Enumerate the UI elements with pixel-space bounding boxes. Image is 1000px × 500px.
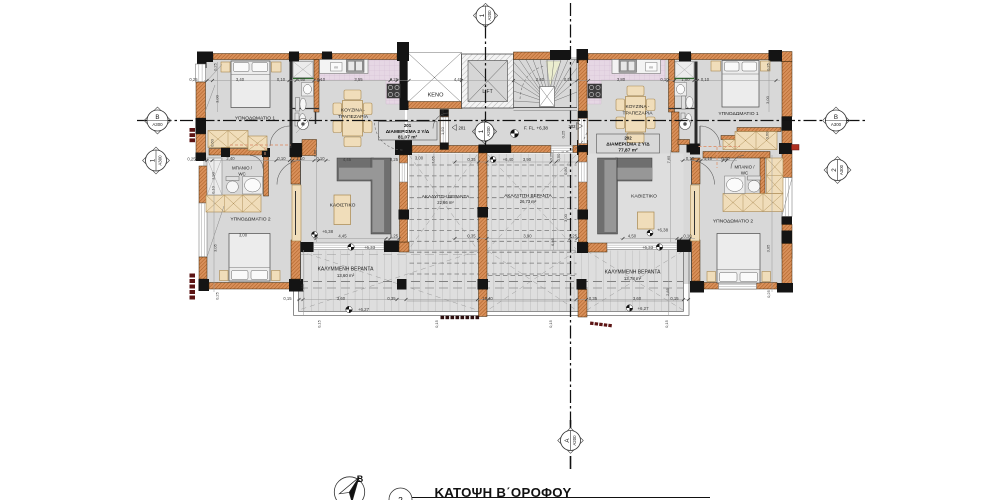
svg-text:0,25: 0,25 <box>213 62 218 71</box>
svg-text:3,80: 3,80 <box>617 77 626 82</box>
svg-text:WC: WC <box>238 172 245 177</box>
svg-text:0,10: 0,10 <box>660 77 669 82</box>
svg-text:7,65: 7,65 <box>666 155 671 164</box>
svg-text:3,90: 3,90 <box>523 157 532 162</box>
svg-text:A200: A200 <box>572 435 577 446</box>
svg-text:3,05: 3,05 <box>213 243 218 252</box>
svg-text:ΚΟΥΖΙΝΑ -: ΚΟΥΖΙΝΑ - <box>626 104 650 110</box>
svg-text:1: 1 <box>149 158 156 162</box>
svg-text:0,10: 0,10 <box>683 234 692 239</box>
svg-text:B: B <box>155 114 159 121</box>
svg-text:ΑΚΑΛΥΠΤΗ ΒΕΡΑΝΤΑ: ΑΚΑΛΥΠΤΗ ΒΕΡΑΝΤΑ <box>422 194 470 199</box>
svg-text:0,25: 0,25 <box>766 289 771 298</box>
svg-text:0,25: 0,25 <box>561 130 566 139</box>
svg-text:0,15: 0,15 <box>664 319 669 328</box>
svg-text:0,60: 0,60 <box>210 138 215 147</box>
svg-text:nn: nn <box>334 65 338 69</box>
svg-text:0,10: 0,10 <box>277 156 286 161</box>
svg-text:1,00: 1,00 <box>681 77 690 82</box>
svg-text:0,60: 0,60 <box>765 131 770 140</box>
svg-text:0,10: 0,10 <box>210 185 215 194</box>
svg-text:+6,33: +6,33 <box>364 245 376 250</box>
svg-text:1: 1 <box>478 129 485 133</box>
svg-text:13,60 m²: 13,60 m² <box>337 273 355 278</box>
svg-text:ΚΑΘΙΣΤΙΚΟ: ΚΑΘΙΣΤΙΚΟ <box>330 203 356 209</box>
svg-text:0,25: 0,25 <box>189 77 198 82</box>
svg-text:A300: A300 <box>839 164 844 175</box>
svg-text:4,45: 4,45 <box>454 77 463 82</box>
svg-text:0,25: 0,25 <box>187 157 196 162</box>
svg-text:0,35: 0,35 <box>467 157 476 162</box>
svg-text:0,25: 0,25 <box>564 77 573 82</box>
svg-text:0,25: 0,25 <box>548 152 553 161</box>
svg-text:3,40: 3,40 <box>236 77 245 82</box>
svg-text:0,15: 0,15 <box>283 296 292 301</box>
svg-text:0,50: 0,50 <box>556 153 561 162</box>
svg-text:18,40: 18,40 <box>482 296 493 301</box>
svg-text:2,85: 2,85 <box>300 283 305 292</box>
svg-text:0,15: 0,15 <box>670 296 679 301</box>
svg-text:0,25: 0,25 <box>440 109 445 118</box>
svg-text:+6,27: +6,27 <box>358 307 370 312</box>
svg-text:4,50: 4,50 <box>628 234 637 239</box>
svg-text:0,35: 0,35 <box>467 234 476 239</box>
svg-text:ΔΙΑΜΕΡΙΣΜΑ 2 Υ/Δ: ΔΙΑΜΕΡΙΣΜΑ 2 Υ/Δ <box>386 129 430 135</box>
svg-text:2: 2 <box>831 168 838 172</box>
svg-text:1: 1 <box>479 13 486 17</box>
svg-text:ΔΙΑΜΕΡΙΣΜΑ 2 Υ/Δ: ΔΙΑΜΕΡΙΣΜΑ 2 Υ/Δ <box>606 142 650 148</box>
svg-text:A300: A300 <box>152 122 163 127</box>
svg-text:201: 201 <box>404 123 412 128</box>
svg-text:0,10: 0,10 <box>316 156 325 161</box>
svg-text:2: 2 <box>398 495 403 500</box>
svg-text:A300: A300 <box>831 122 842 127</box>
svg-text:2,40: 2,40 <box>226 156 235 161</box>
svg-text:22,86 m²: 22,86 m² <box>437 200 454 205</box>
svg-text:0,10: 0,10 <box>686 156 695 161</box>
svg-text:0,15: 0,15 <box>548 319 553 328</box>
svg-text:ΜΠΑΝΙΟ /: ΜΠΑΝΙΟ / <box>734 165 755 170</box>
svg-text:+6,38: +6,38 <box>322 229 334 234</box>
svg-text:3,00: 3,00 <box>765 95 770 104</box>
svg-text:77,87 m²: 77,87 m² <box>618 147 638 153</box>
svg-text:ΑΚΑΛΥΠΤΗ ΒΕΡΑΝΤΑ: ΑΚΑΛΥΠΤΗ ΒΕΡΑΝΤΑ <box>504 193 552 198</box>
svg-text:1,10: 1,10 <box>704 156 713 161</box>
svg-text:6,95: 6,95 <box>550 237 555 246</box>
svg-text:0,15: 0,15 <box>434 319 439 328</box>
svg-text:A200: A200 <box>486 126 491 137</box>
svg-text:+6,38: +6,38 <box>657 228 669 233</box>
svg-text:1,50: 1,50 <box>440 126 445 135</box>
svg-text:ΤΡΑΠΕΖΑΡΙΑ: ΤΡΑΠΕΖΑΡΙΑ <box>622 111 653 117</box>
svg-text:0,15: 0,15 <box>316 319 321 328</box>
svg-text:ΤΡΑΠΕΖΑΡΙΑ: ΤΡΑΠΕΖΑΡΙΑ <box>338 114 369 120</box>
svg-text:2,85: 2,85 <box>665 287 670 296</box>
svg-text:3,00: 3,00 <box>239 233 248 238</box>
svg-text:KENO: KENO <box>428 93 445 99</box>
svg-text:ΥΠΝΟΔΩΜΑΤΙΟ 1: ΥΠΝΟΔΩΜΑΤΙΟ 1 <box>718 111 758 117</box>
svg-text:202: 202 <box>624 136 632 141</box>
svg-text:F. FL. +6,38: F. FL. +6,38 <box>524 126 548 131</box>
svg-text:0,35: 0,35 <box>387 296 396 301</box>
svg-text:3,05: 3,05 <box>766 244 771 253</box>
svg-text:0,10: 0,10 <box>701 77 710 82</box>
svg-text:4,45: 4,45 <box>338 234 347 239</box>
svg-text:3,00: 3,00 <box>215 94 220 103</box>
svg-text:+6,33: +6,33 <box>642 245 654 250</box>
svg-text:B: B <box>834 114 838 121</box>
svg-text:0,25: 0,25 <box>390 157 399 162</box>
svg-text:0,25: 0,25 <box>766 62 771 71</box>
svg-text:81,07 m²: 81,07 m² <box>398 135 418 141</box>
svg-text:3,60: 3,60 <box>337 296 346 301</box>
svg-text:+6,40: +6,40 <box>503 157 514 162</box>
svg-text:202: 202 <box>569 124 577 129</box>
svg-text:ΚΑΘΙΣΤΙΚΟ: ΚΑΘΙΣΤΙΚΟ <box>631 194 657 200</box>
svg-text:0,10: 0,10 <box>317 77 326 82</box>
svg-text:WC: WC <box>741 171 748 176</box>
svg-text:3,60: 3,60 <box>633 296 642 301</box>
svg-text:2,60: 2,60 <box>536 77 545 82</box>
svg-text:0,25: 0,25 <box>214 291 219 300</box>
svg-text:3,90: 3,90 <box>523 234 532 239</box>
svg-text:0,10: 0,10 <box>277 77 286 82</box>
svg-text:ΥΠΝΟΔΩΜΑΤΙΟ 2: ΥΠΝΟΔΩΜΑΤΙΟ 2 <box>713 219 753 225</box>
svg-text:ΚΟΥΖΙΝΑ -: ΚΟΥΖΙΝΑ - <box>341 108 365 114</box>
svg-text:1,90: 1,90 <box>210 171 215 180</box>
svg-text:LIFT: LIFT <box>482 89 492 95</box>
svg-text:ΥΠΝΟΔΩΜΑΤΙΟ 2: ΥΠΝΟΔΩΜΑΤΙΟ 2 <box>230 217 270 223</box>
svg-text:13,78 m²: 13,78 m² <box>624 276 642 281</box>
svg-text:0,10: 0,10 <box>721 156 730 161</box>
svg-text:7,65: 7,65 <box>313 149 318 158</box>
svg-text:201: 201 <box>459 126 467 131</box>
svg-text:0,35: 0,35 <box>589 296 598 301</box>
svg-text:3,00: 3,00 <box>415 156 424 161</box>
svg-text:A300: A300 <box>158 155 163 166</box>
svg-text:ΜΠΑΝΙΟ /: ΜΠΑΝΙΟ / <box>232 166 253 171</box>
svg-text:0,25: 0,25 <box>390 234 399 239</box>
svg-text:4,45: 4,45 <box>343 157 352 162</box>
svg-text:3,00: 3,00 <box>563 213 568 222</box>
svg-text:+6,27: +6,27 <box>637 306 649 311</box>
svg-text:ΚΑΛΥΜΜΕΝΗ ΒΕΡΑΝΤΑ: ΚΑΛΥΜΜΕΝΗ ΒΕΡΑΝΤΑ <box>605 270 662 276</box>
svg-text:1,50: 1,50 <box>297 77 306 82</box>
svg-text:0,25: 0,25 <box>390 77 399 82</box>
svg-text:1,10: 1,10 <box>296 156 305 161</box>
svg-text:B: B <box>357 474 364 484</box>
svg-text:26,73 m²: 26,73 m² <box>520 199 537 204</box>
svg-text:3,55: 3,55 <box>354 77 363 82</box>
svg-text:A200: A200 <box>487 10 492 21</box>
svg-text:nn: nn <box>649 65 653 69</box>
svg-text:ΚΑΛΥΜΜΕΝΗ ΒΕΡΑΝΤΑ: ΚΑΛΥΜΜΕΝΗ ΒΕΡΑΝΤΑ <box>318 267 375 273</box>
svg-text:7,65: 7,65 <box>431 155 436 164</box>
svg-text:0,80: 0,80 <box>563 166 568 175</box>
